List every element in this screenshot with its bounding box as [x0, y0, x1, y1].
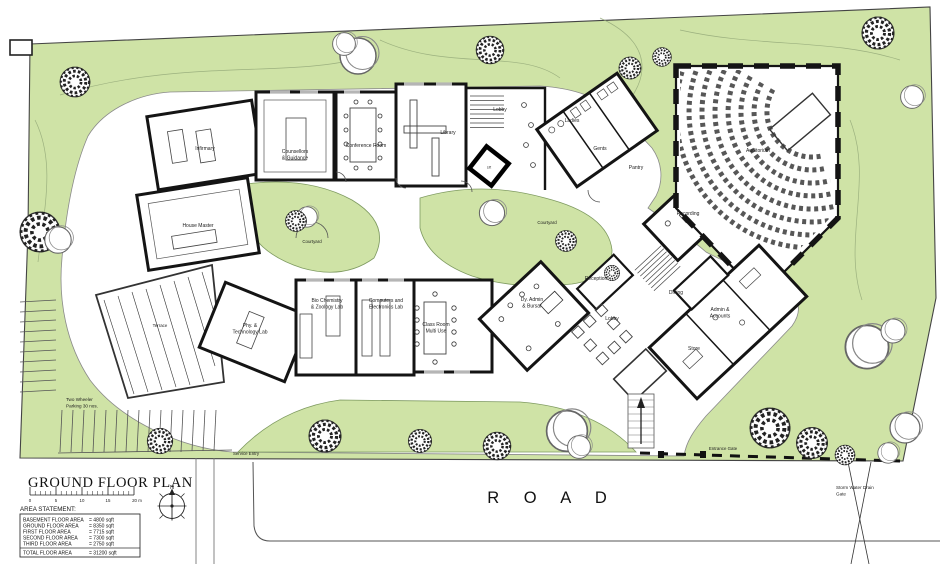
label-counsellors-1: Counsellors: [282, 149, 309, 155]
tree-icon: [476, 36, 504, 64]
tree-icon: [286, 211, 307, 232]
area-row: THIRD FLOOR AREA = 2750 sqft: [23, 542, 114, 548]
label-counsellors-2: & Guidance: [282, 156, 308, 162]
scale-tick-4: 20 m: [132, 498, 142, 503]
area-row-value: = 31200 sqft: [89, 551, 117, 557]
scale-tick-3: 15: [106, 498, 111, 503]
scale-tick-1: 5: [55, 498, 58, 503]
label-pantry: Pantry: [629, 165, 644, 171]
label-ladies: Ladies: [565, 118, 580, 124]
label-computers-1: Computers and: [369, 298, 403, 304]
area-row-total: TOTAL FLOOR AREA = 31200 sqft: [23, 551, 117, 557]
area-row-value: = 2750 sqft: [89, 542, 114, 548]
label-courtyard-center: Courtyard: [537, 220, 557, 225]
label-admin-1: Admin &: [711, 307, 731, 313]
label-biochem-1: Bio Chemistry: [311, 298, 343, 304]
building-computers-lab: [356, 280, 414, 375]
label-library: Library: [440, 130, 456, 136]
title-block: GROUND FLOOR PLAN 0 5 10 15 20 m: [20, 475, 193, 557]
tree-icon: [408, 429, 431, 452]
label-reception: Reception: [585, 276, 608, 282]
corner-structure: [10, 40, 32, 55]
label-phy-1: Phy. &: [243, 323, 258, 329]
label-gents: Gents: [593, 146, 607, 152]
label-multiuse-2: Multi Use: [426, 329, 447, 335]
label-admin-2: Accounts: [710, 314, 731, 320]
service-drive: [196, 458, 214, 564]
building-biochem-lab: [296, 280, 356, 375]
tree-icon: [750, 408, 790, 448]
drain-crossing: [848, 462, 871, 564]
label-infirmary: Infirmary: [195, 146, 215, 152]
label-multiuse-1: Class Room: [422, 322, 449, 328]
tree-icon: [60, 67, 90, 97]
tree-icon: [556, 231, 577, 252]
scale-tick-0: 0: [29, 498, 32, 503]
area-row-label: THIRD FLOOR AREA: [23, 542, 72, 548]
scale-tick-2: 10: [80, 498, 85, 503]
label-phy-2: Technology Lab: [232, 330, 267, 336]
label-lobby-upper: Lobby: [493, 107, 507, 113]
area-statement-heading: AREA STATEMENT:: [20, 506, 76, 513]
label-courtyard-west: Courtyard: [302, 239, 322, 244]
area-statement-table: BASEMENT FLOOR AREA = 4800 sqft GROUND F…: [20, 514, 140, 557]
area-row-label: TOTAL FLOOR AREA: [23, 551, 72, 557]
floor-plan-canvas: Infirmary House Master Counsellors & Gui…: [0, 0, 940, 564]
label-dyadmin-2: & Bursar: [522, 304, 542, 310]
label-two-wheeler-1: Two Wheeler: [66, 397, 93, 402]
tree-icon: [890, 412, 923, 443]
building-counsellors: [256, 92, 334, 180]
building-conference: [336, 92, 398, 180]
tree-icon: [653, 48, 672, 67]
label-service-entry: Service Entry: [233, 451, 260, 456]
label-house-master: House Master: [182, 223, 213, 229]
building-infirmary: [147, 100, 263, 190]
label-recording: Recording: [677, 211, 700, 217]
label-conference: Conference Room: [346, 143, 387, 149]
plan-title: GROUND FLOOR PLAN: [28, 475, 193, 491]
tree-icon: [797, 428, 828, 459]
label-auditorium: Auditorium: [746, 148, 770, 154]
tree-icon: [483, 432, 511, 460]
label-dyadmin-1: Dy. Admin: [521, 297, 544, 303]
label-store: Store: [688, 346, 700, 352]
label-biochem-2: & Zoology Lab: [311, 305, 343, 311]
label-drain-1: Storm Water Drain: [836, 485, 874, 490]
label-terrace: Terrace: [153, 323, 168, 328]
label-dining: Dining: [669, 290, 683, 296]
label-lift: Lift: [487, 166, 491, 170]
tree-icon: [147, 428, 172, 453]
label-drain-2: Gate: [836, 492, 846, 497]
floor-plan-drawing: Infirmary House Master Counsellors & Gui…: [0, 0, 940, 564]
label-entrance-gate: Entrance Gate: [709, 446, 738, 451]
scale-tick-labels: 0 5 10 15 20 m: [29, 498, 142, 503]
tree-icon: [309, 420, 341, 452]
tree-icon: [862, 17, 894, 49]
label-two-wheeler-2: Parking 30 nos.: [66, 404, 98, 409]
label-lobby-lower: Lobby: [605, 316, 619, 322]
tree-icon: [619, 57, 641, 79]
label-computers-2: Electronics Lab: [369, 305, 403, 311]
road-label: R O A D: [487, 489, 617, 507]
tree-icon: [835, 445, 855, 465]
